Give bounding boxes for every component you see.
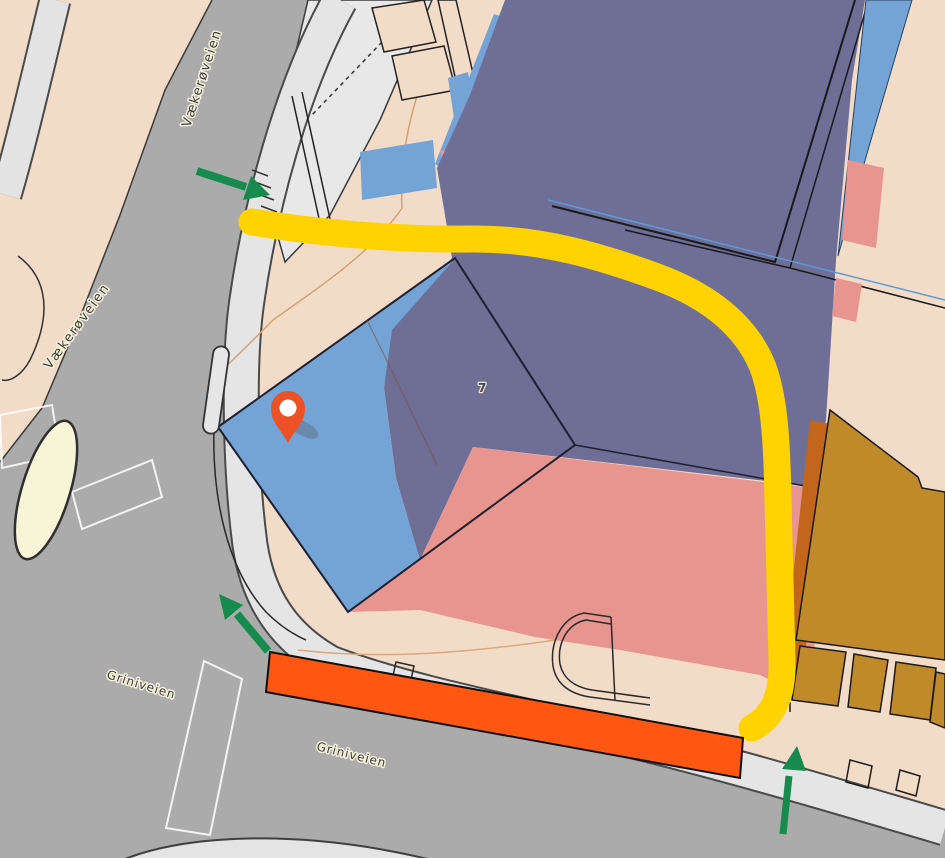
map-canvas[interactable]: Vækerøveien Vækerøveien Griniveien Grini… xyxy=(0,0,945,858)
ochre-annex-3 xyxy=(890,662,936,720)
building-number-label: 7 xyxy=(478,381,486,395)
building-top-1 xyxy=(372,0,436,52)
ochre-annex-1 xyxy=(792,646,846,706)
ochre-annex-2 xyxy=(848,654,888,712)
building-top-2 xyxy=(392,46,456,100)
pin-dot xyxy=(280,400,297,417)
